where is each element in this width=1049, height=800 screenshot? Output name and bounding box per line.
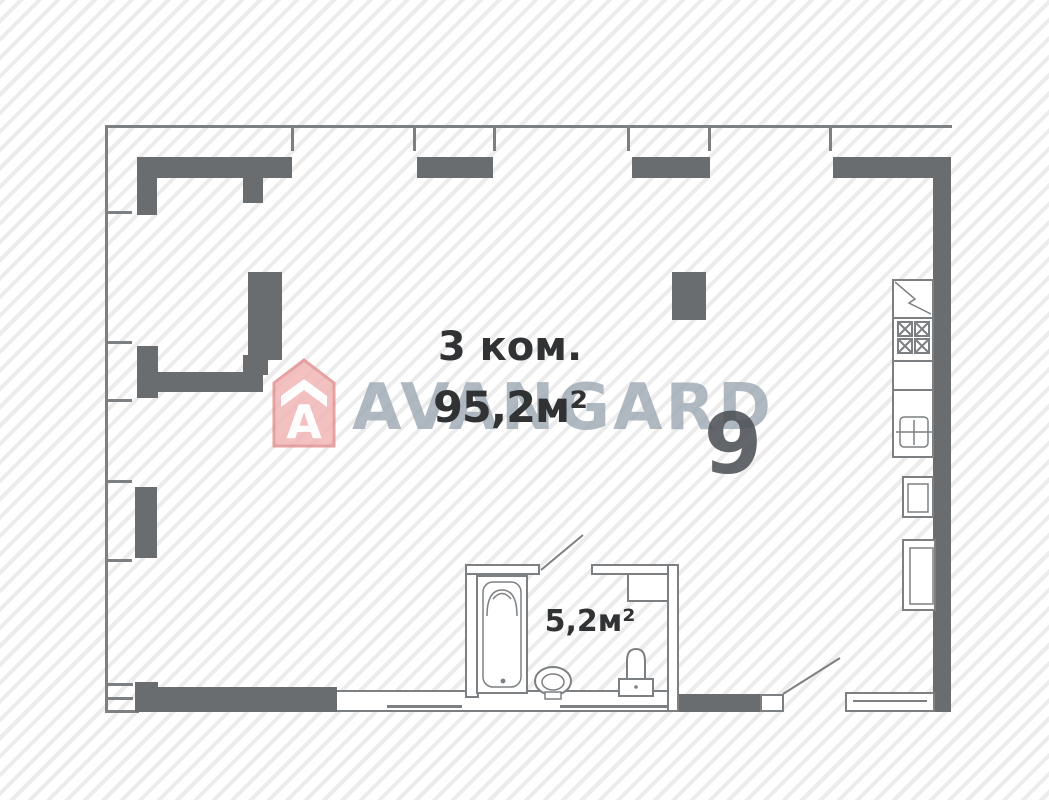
toilet (619, 649, 653, 696)
washing-machine (903, 477, 933, 517)
kitchen-counter (893, 280, 933, 457)
room-count-label: 3 ком. (430, 326, 590, 368)
bathroom-sink (535, 667, 571, 699)
bathroom-cabinet (628, 574, 668, 601)
logo-letter: A (286, 395, 322, 448)
bathroom-door-leaf (541, 535, 583, 570)
bathroom-area-label: 5,2м² (540, 606, 640, 638)
total-area-label: 95,2м² (428, 386, 592, 431)
unit-number: 9 (698, 400, 768, 488)
bathtub (477, 576, 527, 693)
entrance-door-leaf (783, 658, 840, 694)
avangard-logo: A (272, 358, 336, 448)
refrigerator (903, 540, 935, 610)
floor-plan-canvas: A AVANGARD 3 ком. 95,2м² 5,2м² 9 (0, 0, 1049, 800)
